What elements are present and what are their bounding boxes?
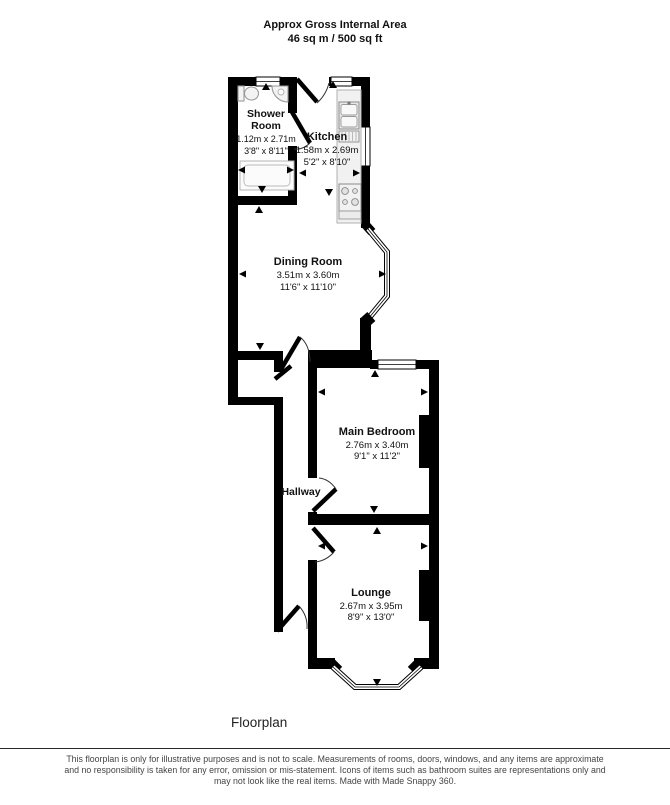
floorplan-caption: Floorplan <box>231 715 287 730</box>
arrow-left-icon <box>299 170 306 177</box>
chimney-breast-lounge <box>419 570 429 621</box>
svg-text:5'2" x 8'10": 5'2" x 8'10" <box>304 157 351 168</box>
dining-room-door <box>280 337 310 371</box>
arrow-up-icon <box>371 370 379 377</box>
arrow-down-icon <box>256 343 264 350</box>
arrow-left-icon <box>239 271 246 278</box>
arrow-down-icon <box>370 506 378 513</box>
disclaimer-line: may not look like the real items. Made w… <box>0 776 670 787</box>
svg-text:1.12m x 2.71m: 1.12m x 2.71m <box>236 134 296 144</box>
svg-text:Shower: Shower <box>247 108 285 120</box>
room-label-main-bedroom: Main Bedroom 2.76m x 3.40m 9'1" x 11'2" <box>339 426 416 462</box>
room-label-hallway: Hallway <box>281 486 320 498</box>
toilet-icon <box>238 86 259 101</box>
corner-basin-icon <box>272 86 288 102</box>
svg-text:11'6" x 11'10": 11'6" x 11'10" <box>280 282 336 293</box>
svg-text:3.51m x 3.60m: 3.51m x 3.60m <box>277 270 340 281</box>
stove-icon <box>339 184 361 219</box>
chimney-breast-bedroom <box>419 415 429 468</box>
svg-text:9'1" x 11'2": 9'1" x 11'2" <box>354 451 400 462</box>
svg-text:2.76m x 3.40m: 2.76m x 3.40m <box>346 440 409 451</box>
window-kitchen-right <box>361 127 370 166</box>
svg-text:Kitchen: Kitchen <box>307 131 348 143</box>
svg-text:1.58m x 2.69m: 1.58m x 2.69m <box>296 145 359 156</box>
window-bedroom <box>378 360 416 369</box>
arrow-left-icon <box>318 543 325 550</box>
floorplan-drawing: Shower Room 1.12m x 2.71m 3'8" x 8'11" K… <box>0 0 670 805</box>
room-label-shower-room: Shower Room 1.12m x 2.71m 3'8" x 8'11" <box>236 108 296 156</box>
room-label-dining-room: Dining Room 3.51m x 3.60m 11'6" x 11'10" <box>274 256 343 293</box>
svg-text:Dining Room: Dining Room <box>274 256 343 268</box>
arrow-up-icon <box>255 206 263 213</box>
disclaimer-line: This floorplan is only for illustrative … <box>0 754 670 765</box>
svg-text:3'8" x 8'11": 3'8" x 8'11" <box>244 146 288 156</box>
disclaimer: This floorplan is only for illustrative … <box>0 754 670 788</box>
divider-line <box>0 748 670 749</box>
svg-text:Main Bedroom: Main Bedroom <box>339 426 416 438</box>
entry-door-kitchen <box>297 79 329 103</box>
disclaimer-line: and no responsibility is taken for any e… <box>0 765 670 776</box>
window-shower <box>256 77 280 86</box>
arrow-left-icon <box>318 389 325 396</box>
arrow-right-icon <box>421 543 428 550</box>
arrow-up-icon <box>373 527 381 534</box>
svg-text:Hallway: Hallway <box>281 486 320 498</box>
arrow-down-icon <box>325 189 333 196</box>
svg-text:8'9" x 13'0": 8'9" x 13'0" <box>348 612 395 623</box>
arrow-right-icon <box>421 389 428 396</box>
svg-text:2.67m x 3.95m: 2.67m x 3.95m <box>340 601 403 612</box>
room-label-lounge: Lounge 2.67m x 3.95m 8'9" x 13'0" <box>340 587 403 623</box>
svg-text:Room: Room <box>251 120 281 132</box>
shower-tray-icon <box>240 161 294 190</box>
svg-text:Lounge: Lounge <box>351 587 391 599</box>
kitchen-sink-icon <box>339 101 359 129</box>
